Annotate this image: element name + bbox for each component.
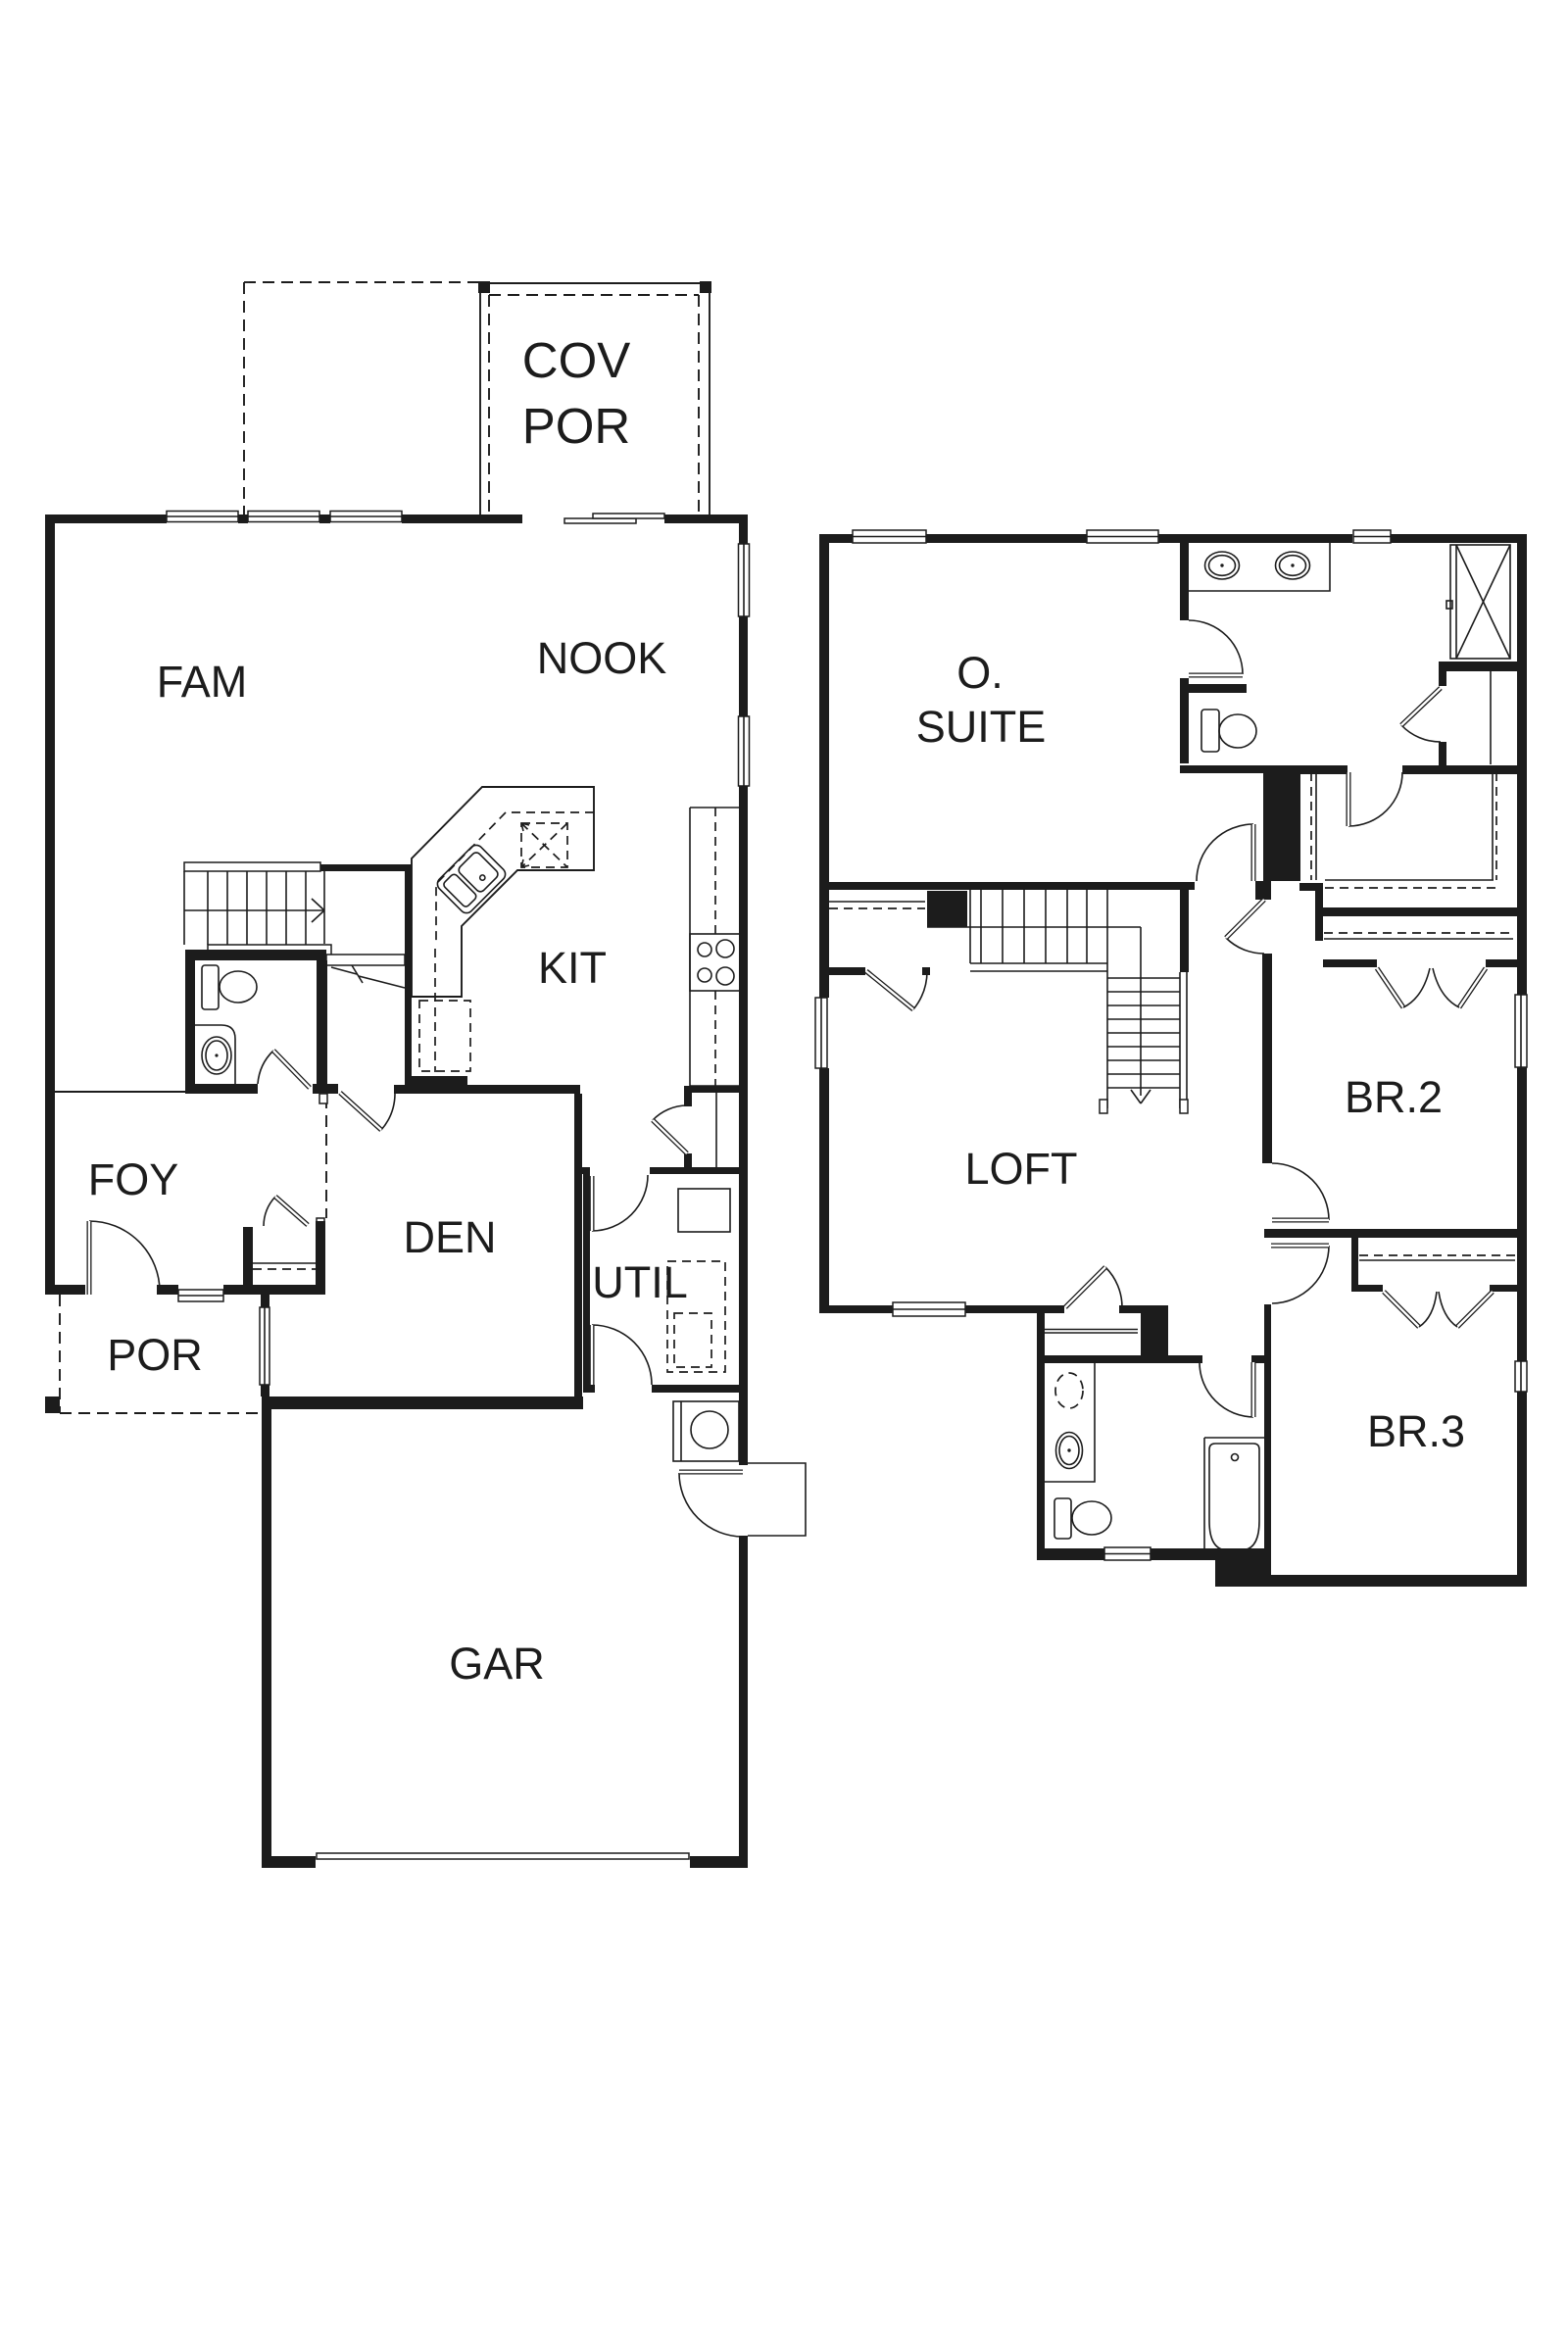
- svg-text:BR.2: BR.2: [1345, 1072, 1443, 1122]
- svg-text:SUITE: SUITE: [916, 702, 1047, 752]
- svg-text:BR.3: BR.3: [1367, 1406, 1465, 1456]
- svg-text:O.: O.: [956, 648, 1004, 698]
- svg-text:POR: POR: [107, 1330, 203, 1380]
- svg-text:DEN: DEN: [403, 1212, 496, 1262]
- svg-text:UTIL: UTIL: [592, 1257, 688, 1307]
- svg-text:FAM: FAM: [157, 657, 248, 707]
- svg-text:FOY: FOY: [88, 1154, 179, 1204]
- svg-text:POR: POR: [522, 398, 631, 454]
- svg-text:NOOK: NOOK: [537, 633, 667, 683]
- svg-text:KIT: KIT: [538, 943, 607, 993]
- svg-text:GAR: GAR: [449, 1639, 545, 1689]
- svg-text:COV: COV: [522, 332, 631, 388]
- svg-text:LOFT: LOFT: [964, 1144, 1077, 1194]
